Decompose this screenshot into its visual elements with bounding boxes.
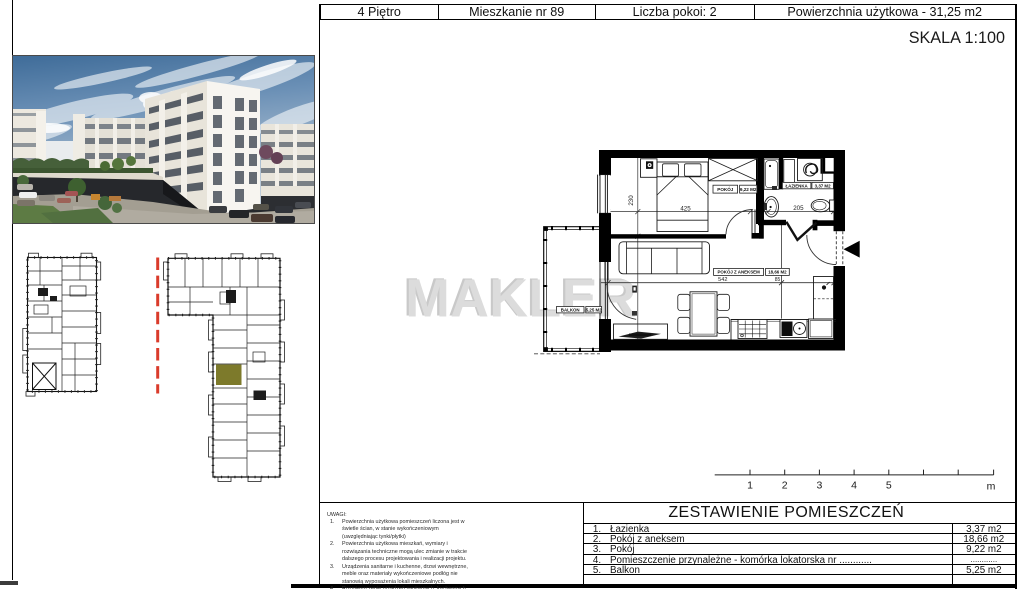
svg-text:3,37 M2: 3,37 M2 xyxy=(815,183,831,188)
svg-text:POKÓJ: POKÓJ xyxy=(717,185,734,192)
svg-text:542: 542 xyxy=(718,277,727,283)
svg-text:BALKON: BALKON xyxy=(561,307,580,312)
svg-text:230: 230 xyxy=(628,195,635,206)
svg-text:m: m xyxy=(987,481,996,493)
svg-text:425: 425 xyxy=(680,206,691,213)
svg-text:9,22 M2: 9,22 M2 xyxy=(740,187,757,192)
svg-text:205: 205 xyxy=(793,205,804,212)
svg-text:3: 3 xyxy=(816,480,822,492)
svg-text:85: 85 xyxy=(775,277,781,283)
svg-text:2: 2 xyxy=(782,480,788,492)
svg-text:POKÓJ Z ANEKSEM: POKÓJ Z ANEKSEM xyxy=(717,270,760,275)
svg-text:5,25 M2: 5,25 M2 xyxy=(586,307,602,312)
svg-text:1: 1 xyxy=(747,480,753,492)
svg-text:4: 4 xyxy=(851,480,857,492)
svg-text:18,66 M2: 18,66 M2 xyxy=(768,270,787,275)
svg-text:5: 5 xyxy=(886,480,892,492)
svg-text:ŁAZIENKA: ŁAZIENKA xyxy=(785,183,808,188)
